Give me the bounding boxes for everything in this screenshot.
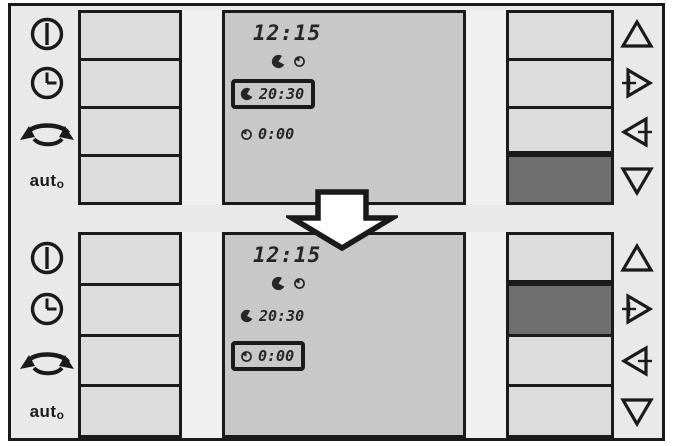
housing-strip bbox=[182, 10, 222, 205]
auto-button[interactable] bbox=[81, 384, 179, 435]
off-time-icon bbox=[240, 128, 253, 141]
triangle-down-icon bbox=[614, 387, 660, 439]
on-time-icon bbox=[240, 309, 254, 323]
auto-label: auto bbox=[16, 156, 78, 205]
up-button[interactable] bbox=[509, 235, 611, 283]
power-button[interactable] bbox=[81, 13, 179, 58]
triangle-right-plus-icon bbox=[614, 59, 660, 108]
clock-icon bbox=[16, 59, 78, 108]
triangle-left-minus-icon bbox=[614, 108, 660, 157]
right-button-column bbox=[506, 10, 614, 205]
minus-button[interactable] bbox=[509, 106, 611, 154]
changeover-arrows-icon bbox=[16, 335, 78, 387]
housing-strip bbox=[466, 10, 506, 205]
triangle-up-icon bbox=[614, 232, 660, 284]
legend-icons bbox=[271, 276, 463, 291]
manual-figure: auto 12:15 20:30 0: bbox=[0, 0, 676, 446]
timer-panel-after: auto 12:15 20:30 0: bbox=[16, 232, 660, 438]
on-time-icon bbox=[271, 276, 286, 291]
left-icon-column: auto bbox=[16, 232, 78, 438]
power-button[interactable] bbox=[81, 235, 179, 283]
on-time-value: 20:30 bbox=[259, 307, 304, 325]
down-button[interactable] bbox=[509, 384, 611, 435]
off-time-row: 0:00 bbox=[231, 341, 305, 371]
triangle-up-icon bbox=[614, 10, 660, 59]
down-button[interactable] bbox=[509, 154, 611, 202]
left-button-column bbox=[78, 10, 182, 205]
minus-button[interactable] bbox=[509, 334, 611, 385]
off-time-icon bbox=[240, 350, 253, 363]
on-time-row: 20:30 bbox=[231, 301, 315, 331]
off-time-icon bbox=[293, 55, 306, 68]
on-time-row: 20:30 bbox=[231, 79, 315, 109]
current-time: 12:15 bbox=[253, 21, 463, 45]
plus-button[interactable] bbox=[509, 283, 611, 334]
left-icon-column: auto bbox=[16, 10, 78, 205]
clock-button[interactable] bbox=[81, 58, 179, 106]
up-button[interactable] bbox=[509, 13, 611, 58]
triangle-down-icon bbox=[614, 156, 660, 205]
clock-button[interactable] bbox=[81, 283, 179, 334]
triangle-left-minus-icon bbox=[614, 335, 660, 387]
left-button-column bbox=[78, 232, 182, 438]
right-icon-column bbox=[614, 232, 660, 438]
changeover-button[interactable] bbox=[81, 106, 179, 154]
right-button-column bbox=[506, 232, 614, 438]
housing-strip bbox=[182, 232, 222, 438]
housing-strip bbox=[466, 232, 506, 438]
power-icon bbox=[16, 10, 78, 59]
on-time-icon bbox=[271, 54, 286, 69]
on-time-value: 20:30 bbox=[259, 85, 304, 103]
changeover-button[interactable] bbox=[81, 334, 179, 385]
legend-icons bbox=[271, 54, 463, 69]
on-time-icon bbox=[240, 87, 254, 101]
off-time-value: 0:00 bbox=[258, 125, 294, 143]
triangle-right-plus-icon bbox=[614, 284, 660, 336]
right-icon-column bbox=[614, 10, 660, 205]
lcd-display: 12:15 20:30 0:00 bbox=[222, 10, 466, 205]
auto-button[interactable] bbox=[81, 154, 179, 202]
changeover-arrows-icon bbox=[16, 108, 78, 157]
plus-button[interactable] bbox=[509, 58, 611, 106]
timer-panel-before: auto 12:15 20:30 0: bbox=[16, 10, 660, 205]
power-icon bbox=[16, 232, 78, 284]
off-time-icon bbox=[293, 277, 306, 290]
clock-icon bbox=[16, 284, 78, 336]
lcd-display: 12:15 20:30 0:00 bbox=[222, 232, 466, 438]
off-time-row: 0:00 bbox=[231, 119, 305, 149]
transition-arrow-down-icon bbox=[286, 188, 398, 254]
auto-label: auto bbox=[16, 387, 78, 439]
off-time-value: 0:00 bbox=[258, 347, 294, 365]
